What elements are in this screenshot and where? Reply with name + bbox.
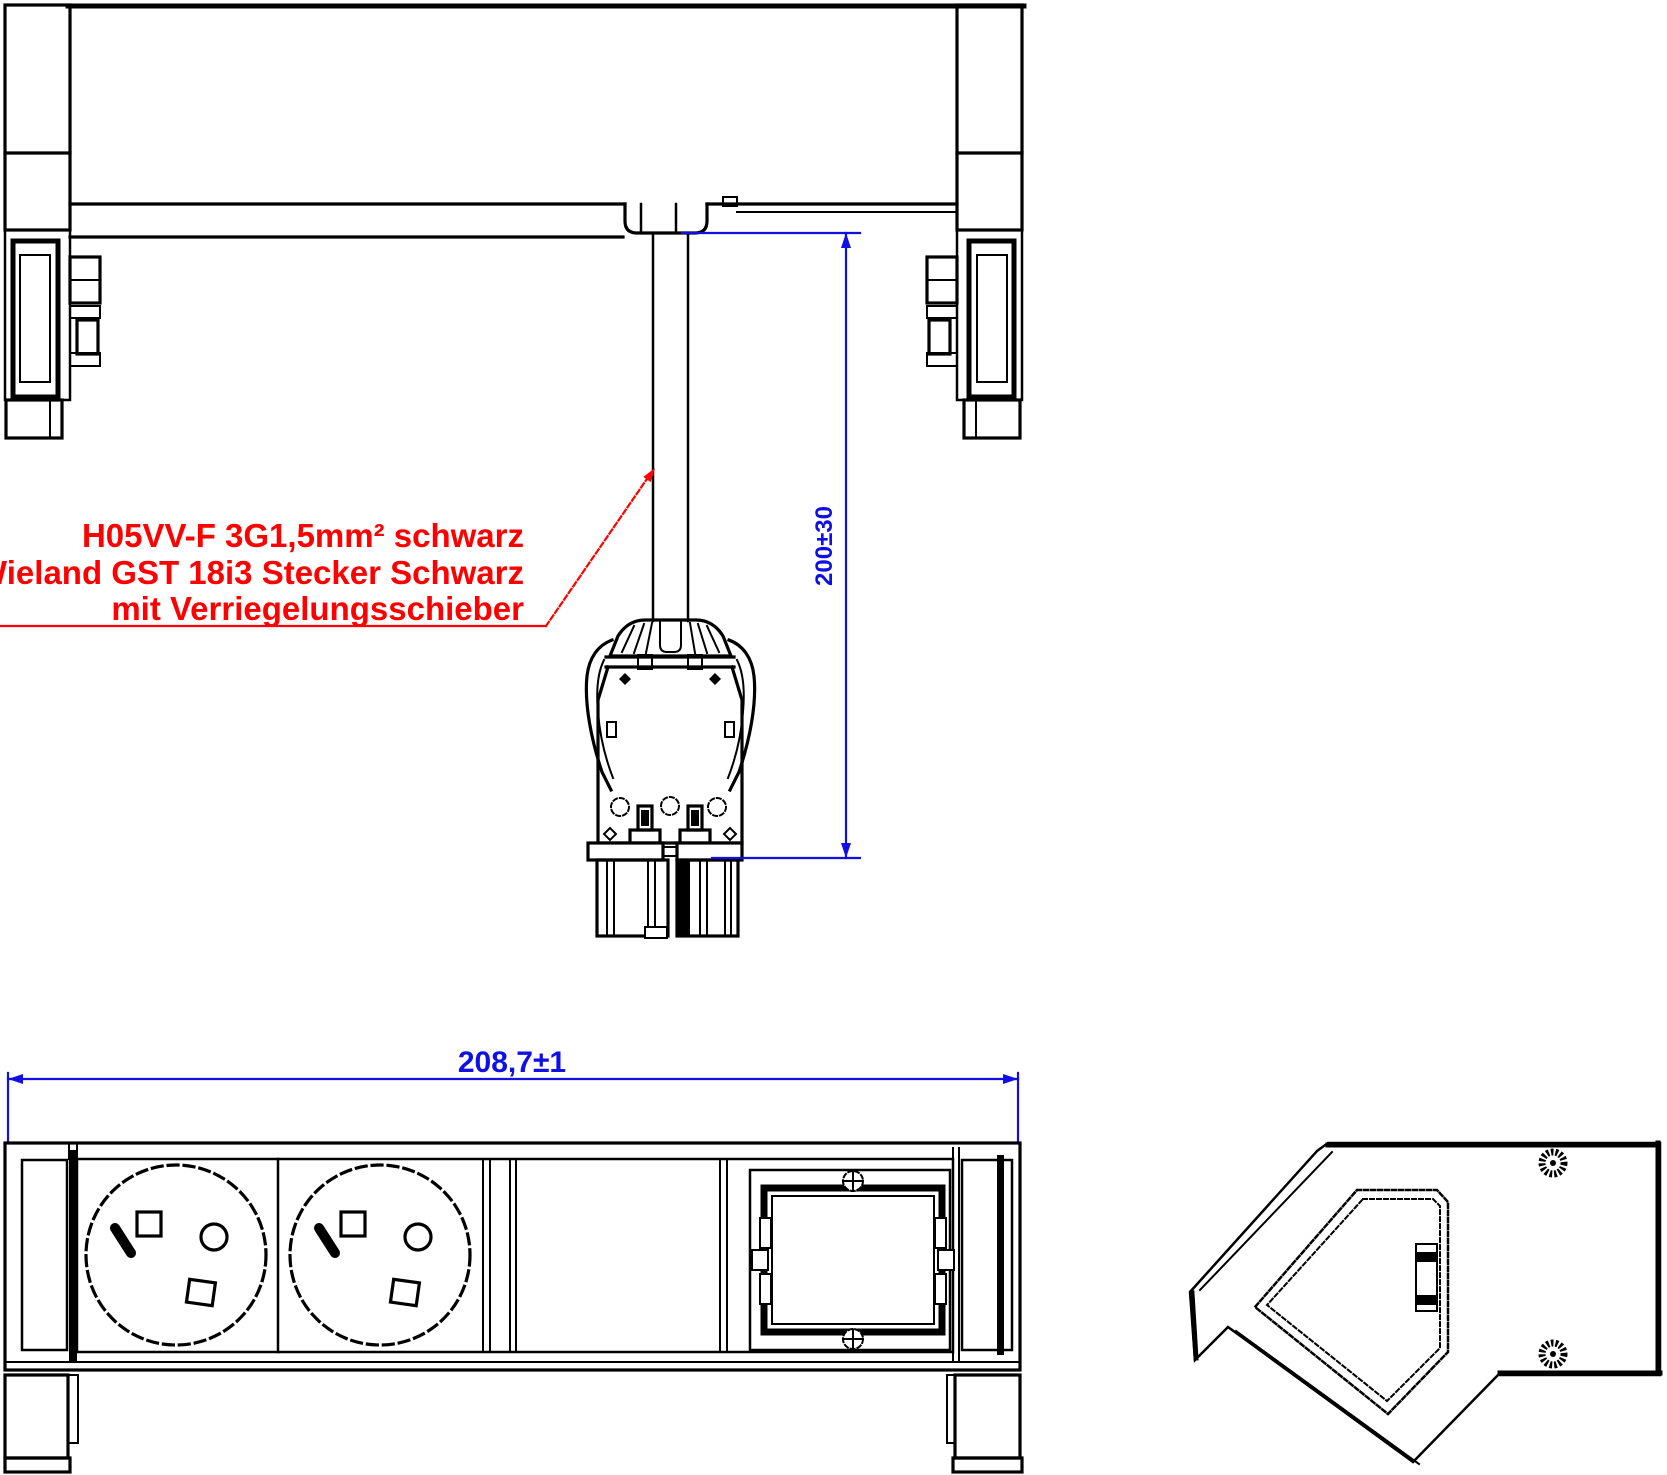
clamp-foot	[964, 400, 1020, 438]
knurled-screw-top	[1542, 1152, 1564, 1174]
module-dividers	[278, 1159, 727, 1352]
contact-hole	[661, 797, 679, 815]
side-view	[1190, 1143, 1660, 1464]
cad-drawing: H05VV-F 3G1,5mm² schwarz Wieland GST 18i…	[0, 0, 1667, 1475]
cable-gland-bracket	[625, 204, 707, 233]
latch-wings	[586, 640, 754, 790]
right-end-cap	[962, 1160, 1012, 1350]
left-end-cap	[22, 1160, 67, 1350]
module-aperture	[750, 1170, 954, 1350]
screw-mark	[709, 673, 721, 685]
gst-connector	[586, 620, 754, 938]
technical-drawing-canvas: H05VV-F 3G1,5mm² schwarz Wieland GST 18i…	[0, 0, 1667, 1475]
pin-slot	[319, 1228, 335, 1253]
frame-screw-top	[843, 1171, 863, 1191]
annotation-line-2: Wieland GST 18i3 Stecker Schwarz	[0, 554, 524, 591]
dim-arrow-up	[841, 233, 851, 248]
side-latch	[752, 1250, 768, 1270]
annotation-line-1: H05VV-F 3G1,5mm² schwarz	[82, 517, 524, 554]
pin-hole-round	[405, 1224, 431, 1250]
strain-relief-collar	[610, 620, 731, 656]
side-latch	[938, 1250, 954, 1270]
elevation-view	[5, 5, 1024, 938]
contact-hole	[611, 798, 629, 816]
right-foot	[947, 1375, 1022, 1472]
socket-outlet-1	[86, 1165, 266, 1345]
terminal-fittings	[630, 806, 710, 844]
socket-outlet-2	[290, 1165, 470, 1345]
cable-annotation: H05VV-F 3G1,5mm² schwarz Wieland GST 18i…	[0, 468, 655, 627]
pin-hole-round	[201, 1224, 227, 1250]
frame-screw-bottom	[843, 1329, 863, 1349]
clamp-screw-tabs	[927, 257, 957, 366]
screw-mark	[619, 673, 631, 685]
earth-hole	[390, 1279, 419, 1305]
annotation-leader	[546, 473, 651, 626]
earth-hole	[186, 1279, 215, 1305]
right-clamp-bracket	[927, 5, 1022, 438]
front-view: 208,7±1	[5, 1046, 1022, 1472]
left-clamp-bracket	[5, 5, 100, 438]
aperture-opening	[772, 1196, 934, 1324]
dim-arrow-down	[841, 843, 851, 858]
width-dimension: 208,7±1	[8, 1046, 1018, 1143]
dim-arrow-right	[1003, 1074, 1018, 1084]
pin-hole-square	[341, 1212, 365, 1236]
socket-face	[86, 1165, 266, 1345]
cable-length-dimension: 200±30	[682, 233, 860, 858]
clamp-foot	[6, 400, 62, 438]
unit-width-value: 208,7±1	[458, 1046, 566, 1079]
dim-arrow-left	[8, 1074, 23, 1084]
power-cable	[653, 233, 688, 621]
angled-socket-face	[1255, 1190, 1448, 1414]
contact-hole	[708, 798, 726, 816]
socket-face	[290, 1165, 470, 1345]
knurled-screw-bottom	[1542, 1343, 1564, 1365]
pin-slot	[115, 1228, 131, 1253]
clamp-screw-tabs	[70, 257, 100, 366]
annotation-line-3: mit Verriegelungsschieber	[111, 590, 524, 627]
cable-length-value: 200±30	[811, 506, 838, 586]
plug-prongs	[597, 860, 738, 938]
pin-hole-square	[137, 1212, 161, 1236]
left-foot	[5, 1375, 78, 1472]
mounting-rail	[68, 6, 1024, 237]
